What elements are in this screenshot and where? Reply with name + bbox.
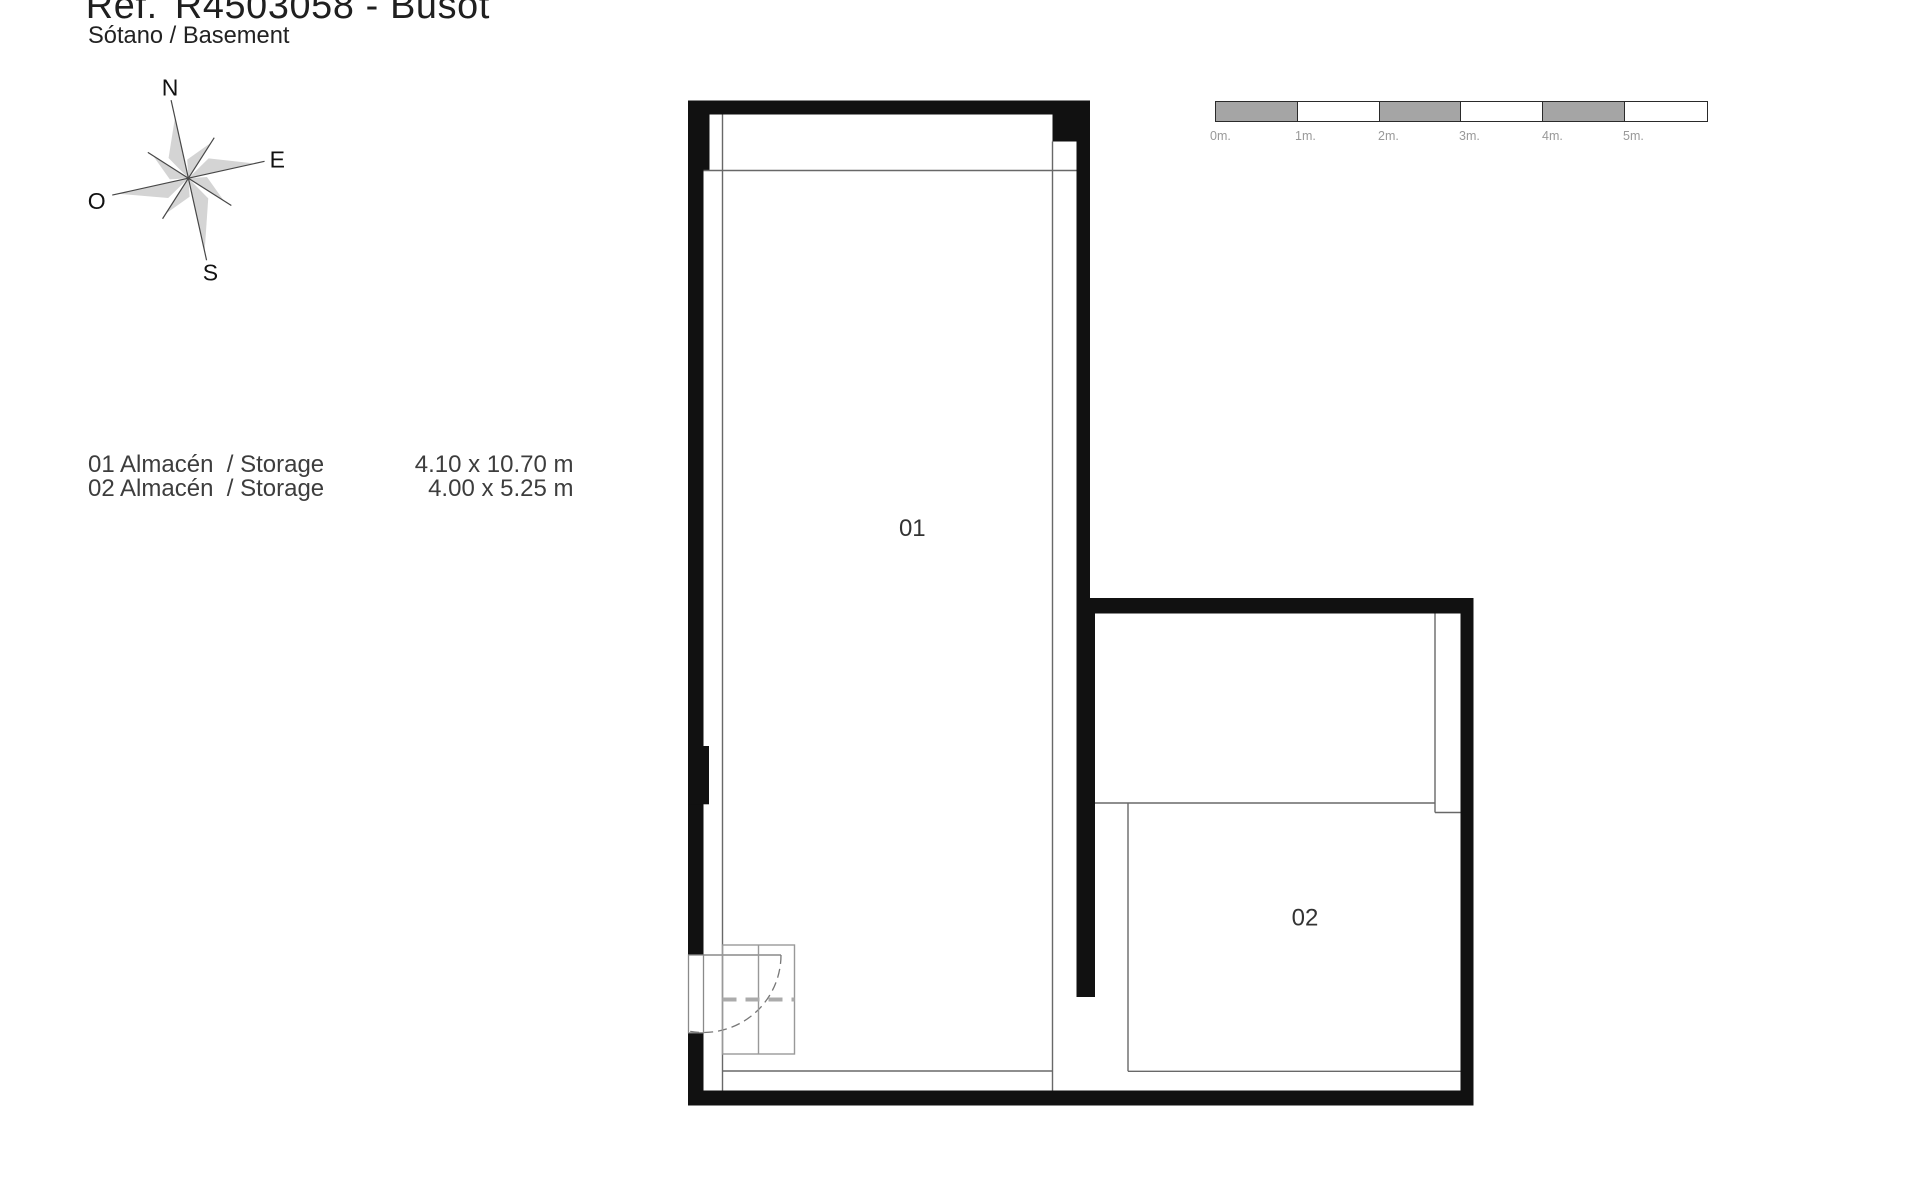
svg-text:02: 02: [1292, 905, 1319, 932]
svg-text:01: 01: [899, 515, 926, 542]
